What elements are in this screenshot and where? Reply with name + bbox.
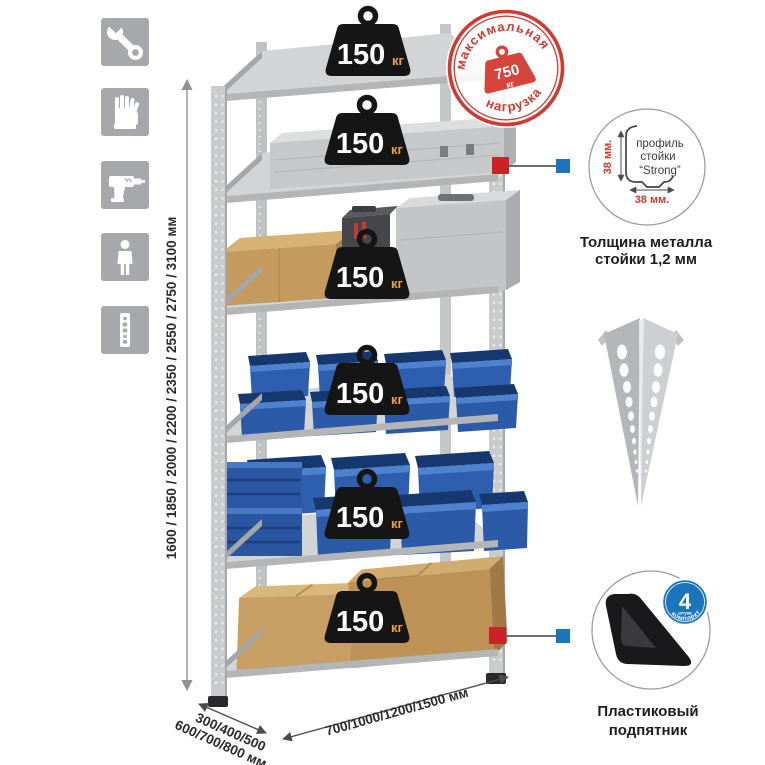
gloves-icon: [101, 88, 149, 136]
svg-text:38 мм.: 38 мм.: [602, 140, 614, 175]
svg-text:кг: кг: [391, 516, 404, 531]
svg-text:кг: кг: [391, 620, 404, 635]
svg-text:“Strong”: “Strong”: [639, 165, 681, 177]
kit-count-badge: 4 штуки в комплекте: [662, 579, 708, 625]
svg-text:150: 150: [336, 262, 384, 294]
drill-icon: [101, 161, 149, 209]
aluminium-box: [396, 190, 520, 298]
plastic-foot: [208, 696, 228, 707]
shelving-diagram: 150 кг 150 кг 150 кг 150 кг 150 кг 150 к…: [0, 0, 765, 765]
perforated-post-photo: [598, 318, 684, 506]
svg-text:кг: кг: [391, 142, 404, 157]
blue-crate-stack: [222, 462, 302, 556]
person-icon: [101, 233, 149, 281]
profile-caption: Толщина металла: [580, 234, 713, 251]
svg-text:150: 150: [336, 378, 384, 410]
sidebar-icons: [101, 18, 149, 354]
red-marker: [492, 157, 509, 174]
wrench-icon: [101, 18, 149, 66]
svg-text:кг: кг: [391, 276, 404, 291]
svg-text:кг: кг: [391, 392, 404, 407]
profile-callout-connector: [492, 157, 570, 174]
svg-text:150: 150: [336, 502, 384, 534]
foot-caption: Пластиковый: [597, 703, 698, 720]
load-badge-1: 150 кг: [326, 9, 411, 77]
svg-text:150: 150: [336, 606, 384, 638]
load-badge-2: 150 кг: [325, 98, 410, 166]
foot-caption: подпятник: [609, 722, 688, 739]
width-dimension: 700/1000/1200/1500 мм: [283, 677, 508, 739]
profile-detail: 38 мм. профиль стойки “Strong” 38 мм.: [589, 109, 705, 225]
profile-caption: стойки 1,2 мм: [595, 251, 697, 268]
svg-text:150: 150: [336, 128, 384, 160]
front-left-post: [208, 86, 228, 707]
foot-callout-connector: [489, 627, 570, 644]
svg-text:38 мм.: 38 мм.: [635, 194, 670, 206]
svg-text:профиль: профиль: [636, 138, 684, 150]
blue-marker: [556, 159, 570, 173]
svg-text:700/1000/1200/1500 мм: 700/1000/1200/1500 мм: [324, 685, 470, 739]
svg-text:150: 150: [337, 39, 385, 71]
rack-post-profile-icon: [101, 306, 149, 354]
blue-marker: [556, 629, 570, 643]
svg-text:кг: кг: [392, 53, 405, 68]
foot-detail: 4 штуки в комплекте: [592, 571, 710, 689]
red-marker: [489, 627, 506, 644]
svg-text:1600 / 1850 / 2000 / 2200 / 23: 1600 / 1850 / 2000 / 2200 / 2350 / 2550 …: [164, 217, 179, 560]
depth-dimension: 300/400/500 600/700/800 мм: [173, 703, 275, 765]
height-dimension: 1600 / 1850 / 2000 / 2200 / 2350 / 2550 …: [164, 80, 187, 690]
svg-text:стойки: стойки: [640, 151, 675, 163]
max-load-stamp: максимальная нагрузка 750 кг: [433, 0, 578, 141]
product-infographic: 150 кг 150 кг 150 кг 150 кг 150 кг 150 к…: [0, 0, 765, 765]
